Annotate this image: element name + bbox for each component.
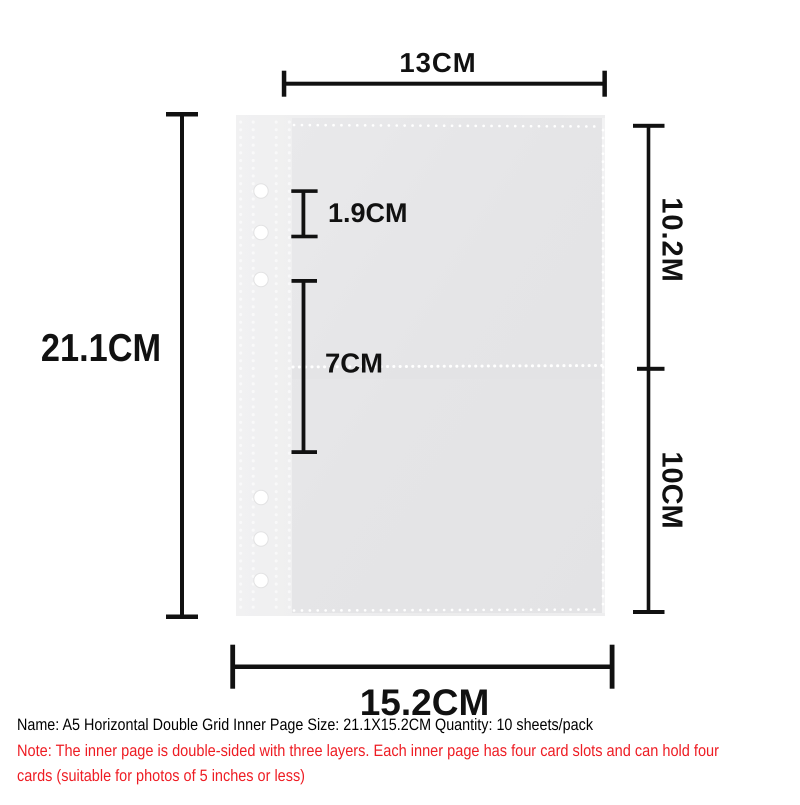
svg-text:10.2M: 10.2M	[656, 197, 688, 283]
svg-text:13CM: 13CM	[399, 47, 476, 78]
svg-text:10CM: 10CM	[656, 451, 688, 528]
svg-text:Note: The inner page is double: Note: The inner page is double-sided wit…	[17, 742, 719, 760]
svg-text:7CM: 7CM	[325, 348, 383, 379]
svg-text:Name: A5 Horizontal Double Gri: Name: A5 Horizontal Double Grid Inner Pa…	[17, 716, 594, 734]
svg-text:cards (suitable for photos of: cards (suitable for photos of 5 inches o…	[17, 767, 305, 785]
svg-text:21.1CM: 21.1CM	[41, 327, 161, 370]
svg-text:1.9CM: 1.9CM	[328, 198, 408, 228]
